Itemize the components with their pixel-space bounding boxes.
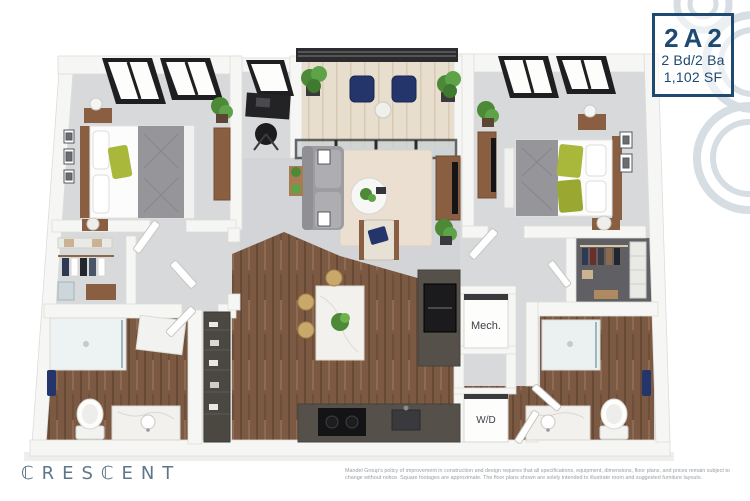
wall-bed2-left bbox=[462, 54, 474, 236]
bed-2 bbox=[504, 136, 622, 220]
unit-badge: 2A2 2 Bd/2 Ba 1,102 SF bbox=[652, 13, 734, 97]
side-table bbox=[289, 166, 303, 196]
wall-bath1-top-a bbox=[44, 304, 182, 318]
wall-chase-top bbox=[454, 286, 516, 294]
wall-bath1-right bbox=[188, 310, 202, 444]
pantry-shelves bbox=[204, 312, 230, 442]
balcony-table bbox=[375, 102, 391, 118]
toilet-1 bbox=[76, 399, 104, 439]
wall-hall2-closet2 bbox=[566, 238, 576, 304]
unit-beds-baths: 2 Bd/2 Ba bbox=[661, 52, 724, 69]
balcony-chair-2 bbox=[392, 76, 416, 102]
range-counter bbox=[298, 404, 460, 442]
wall-bath2-left-a bbox=[526, 302, 538, 386]
nightstand-2b bbox=[592, 216, 620, 230]
fridge-counter bbox=[418, 270, 460, 366]
stool bbox=[298, 322, 314, 338]
unit-area: 1,102 SF bbox=[664, 69, 722, 86]
cooktop bbox=[318, 408, 366, 436]
towel-2 bbox=[642, 370, 651, 396]
closet2-box bbox=[582, 270, 593, 279]
wall-art-1 bbox=[64, 130, 74, 183]
floorplan-render: Mech. W/D bbox=[0, 0, 750, 501]
hanging-clothes-2 bbox=[582, 248, 620, 265]
hanging-clothes-1 bbox=[62, 258, 105, 276]
tv-console bbox=[436, 156, 460, 220]
closet1-dresser bbox=[86, 284, 116, 300]
accent-chair bbox=[359, 220, 399, 260]
vanity-1 bbox=[112, 406, 180, 440]
disclaimer-text: Mandel Group's policy of improvement in … bbox=[345, 468, 747, 482]
bedroom2-dresser bbox=[478, 132, 496, 198]
closet2-bench bbox=[594, 290, 618, 299]
toilet-2 bbox=[600, 399, 628, 439]
closet1-mirror bbox=[58, 282, 74, 300]
balcony-chair-1 bbox=[350, 76, 374, 102]
wall-hall1-right-b bbox=[228, 294, 240, 310]
wall-bath2-top bbox=[526, 302, 658, 316]
mech-closet: Mech. bbox=[464, 294, 508, 348]
balcony-railing bbox=[296, 48, 458, 62]
wall-chase-mid2 bbox=[454, 388, 516, 394]
bed-1 bbox=[80, 126, 194, 218]
sofa bbox=[302, 146, 344, 230]
washer-dryer: W/D bbox=[464, 394, 508, 442]
stool bbox=[326, 270, 342, 286]
nightstand-1b bbox=[82, 218, 108, 231]
wall-bed1-right bbox=[230, 56, 242, 230]
coffee-table bbox=[351, 178, 387, 214]
mech-label: Mech. bbox=[471, 320, 501, 332]
bedroom1-dresser bbox=[214, 128, 230, 200]
crescent-logo: ℂRESℂENT bbox=[21, 463, 181, 484]
shower-2 bbox=[542, 320, 600, 370]
towel-1 bbox=[47, 370, 56, 396]
wall-bed2-bottom-a bbox=[462, 226, 488, 238]
floorplan-page: Mech. W/D bbox=[0, 0, 750, 501]
wall-bed2-bottom-b bbox=[524, 226, 646, 238]
shower-1 bbox=[50, 318, 126, 370]
kitchen-sink bbox=[392, 410, 420, 430]
wd-label: W/D bbox=[476, 415, 495, 426]
unit-plan-code: 2A2 bbox=[659, 25, 727, 52]
stool bbox=[298, 294, 314, 310]
wall-hall1-right-a bbox=[228, 228, 240, 242]
